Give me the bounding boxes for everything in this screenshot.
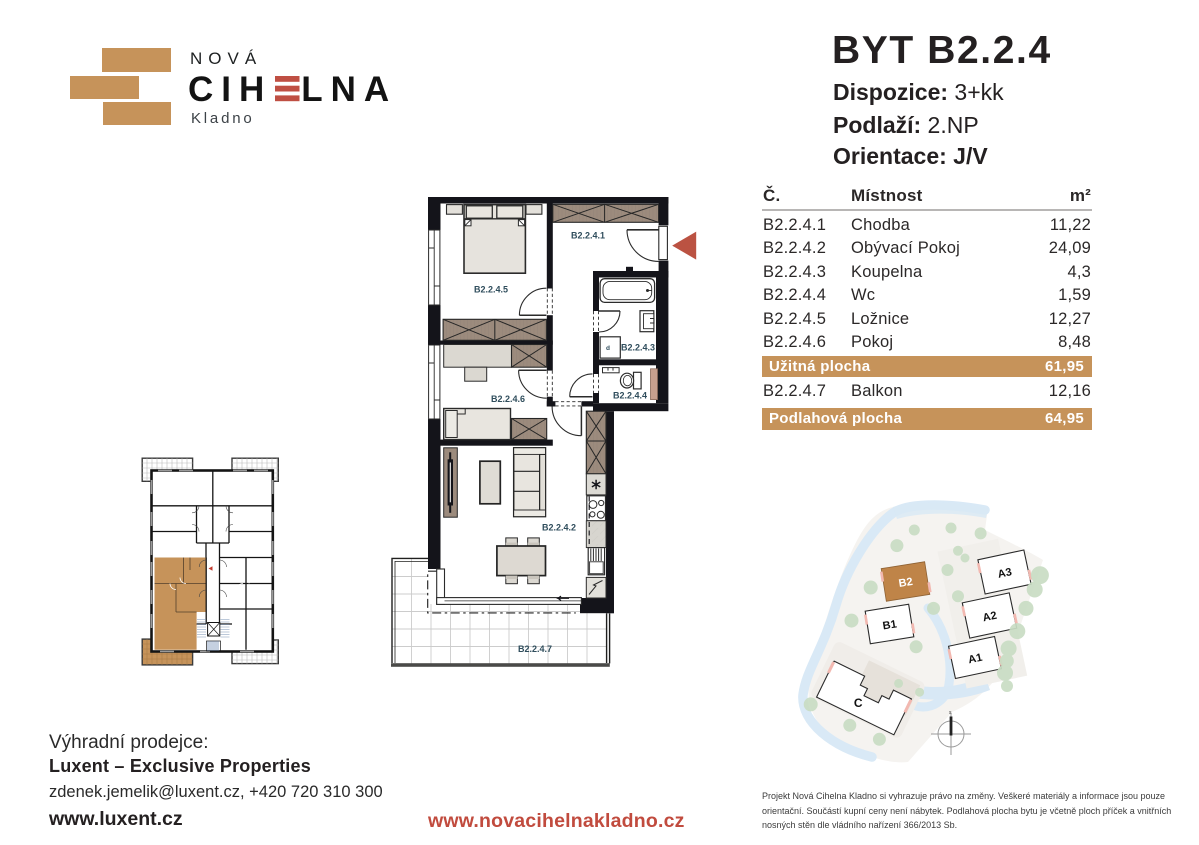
svg-text:B2.2.4.3: B2.2.4.3 — [621, 343, 655, 353]
svg-text:B2: B2 — [898, 576, 914, 590]
svg-text:B2.2.4.4: B2.2.4.4 — [613, 391, 647, 401]
svg-text:B2.2.4.6: B2.2.4.6 — [491, 394, 525, 404]
svg-text:B2.2.4.7: B2.2.4.7 — [518, 644, 552, 654]
svg-text:d: d — [606, 345, 610, 352]
svg-text:B2.2.4.5: B2.2.4.5 — [474, 285, 508, 295]
svg-text:B2.2.4.1: B2.2.4.1 — [571, 231, 605, 241]
svg-text:C: C — [854, 696, 863, 710]
svg-text:B2.2.4.2: B2.2.4.2 — [542, 523, 576, 533]
svg-text:B1: B1 — [882, 618, 898, 632]
